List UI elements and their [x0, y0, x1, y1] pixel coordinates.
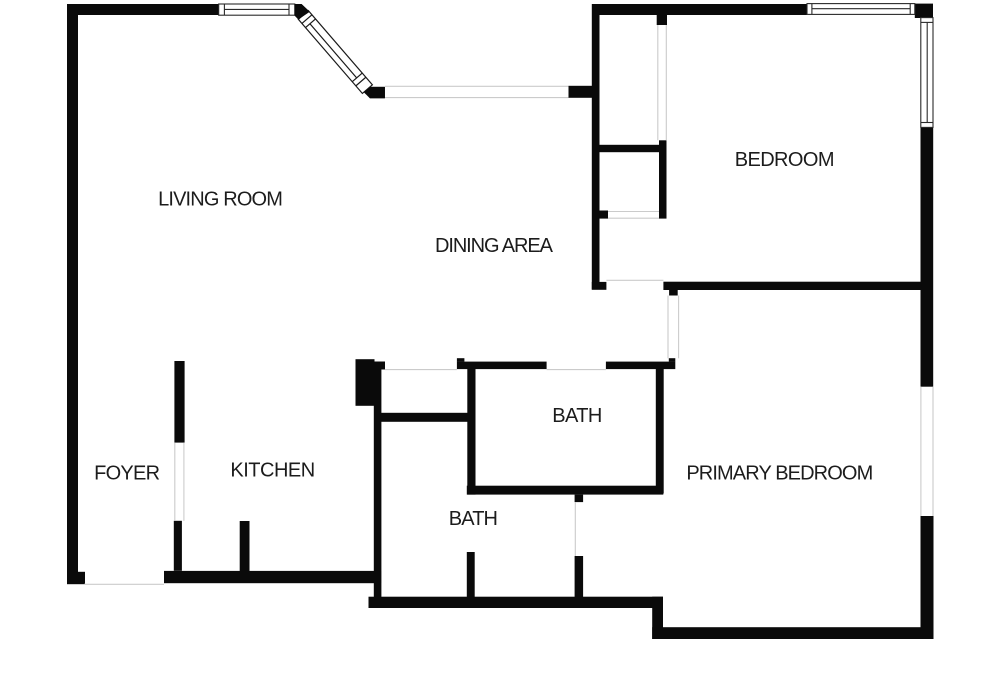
svg-text:BATH: BATH	[552, 405, 602, 427]
svg-text:FOYER: FOYER	[94, 463, 160, 485]
svg-text:DINING AREA: DINING AREA	[435, 235, 554, 257]
svg-text:LIVING ROOM: LIVING ROOM	[158, 188, 283, 210]
svg-text:BATH: BATH	[449, 508, 498, 530]
svg-text:PRIMARY BEDROOM: PRIMARY BEDROOM	[686, 462, 873, 484]
svg-text:KITCHEN: KITCHEN	[230, 460, 315, 482]
svg-text:BEDROOM: BEDROOM	[735, 149, 835, 171]
